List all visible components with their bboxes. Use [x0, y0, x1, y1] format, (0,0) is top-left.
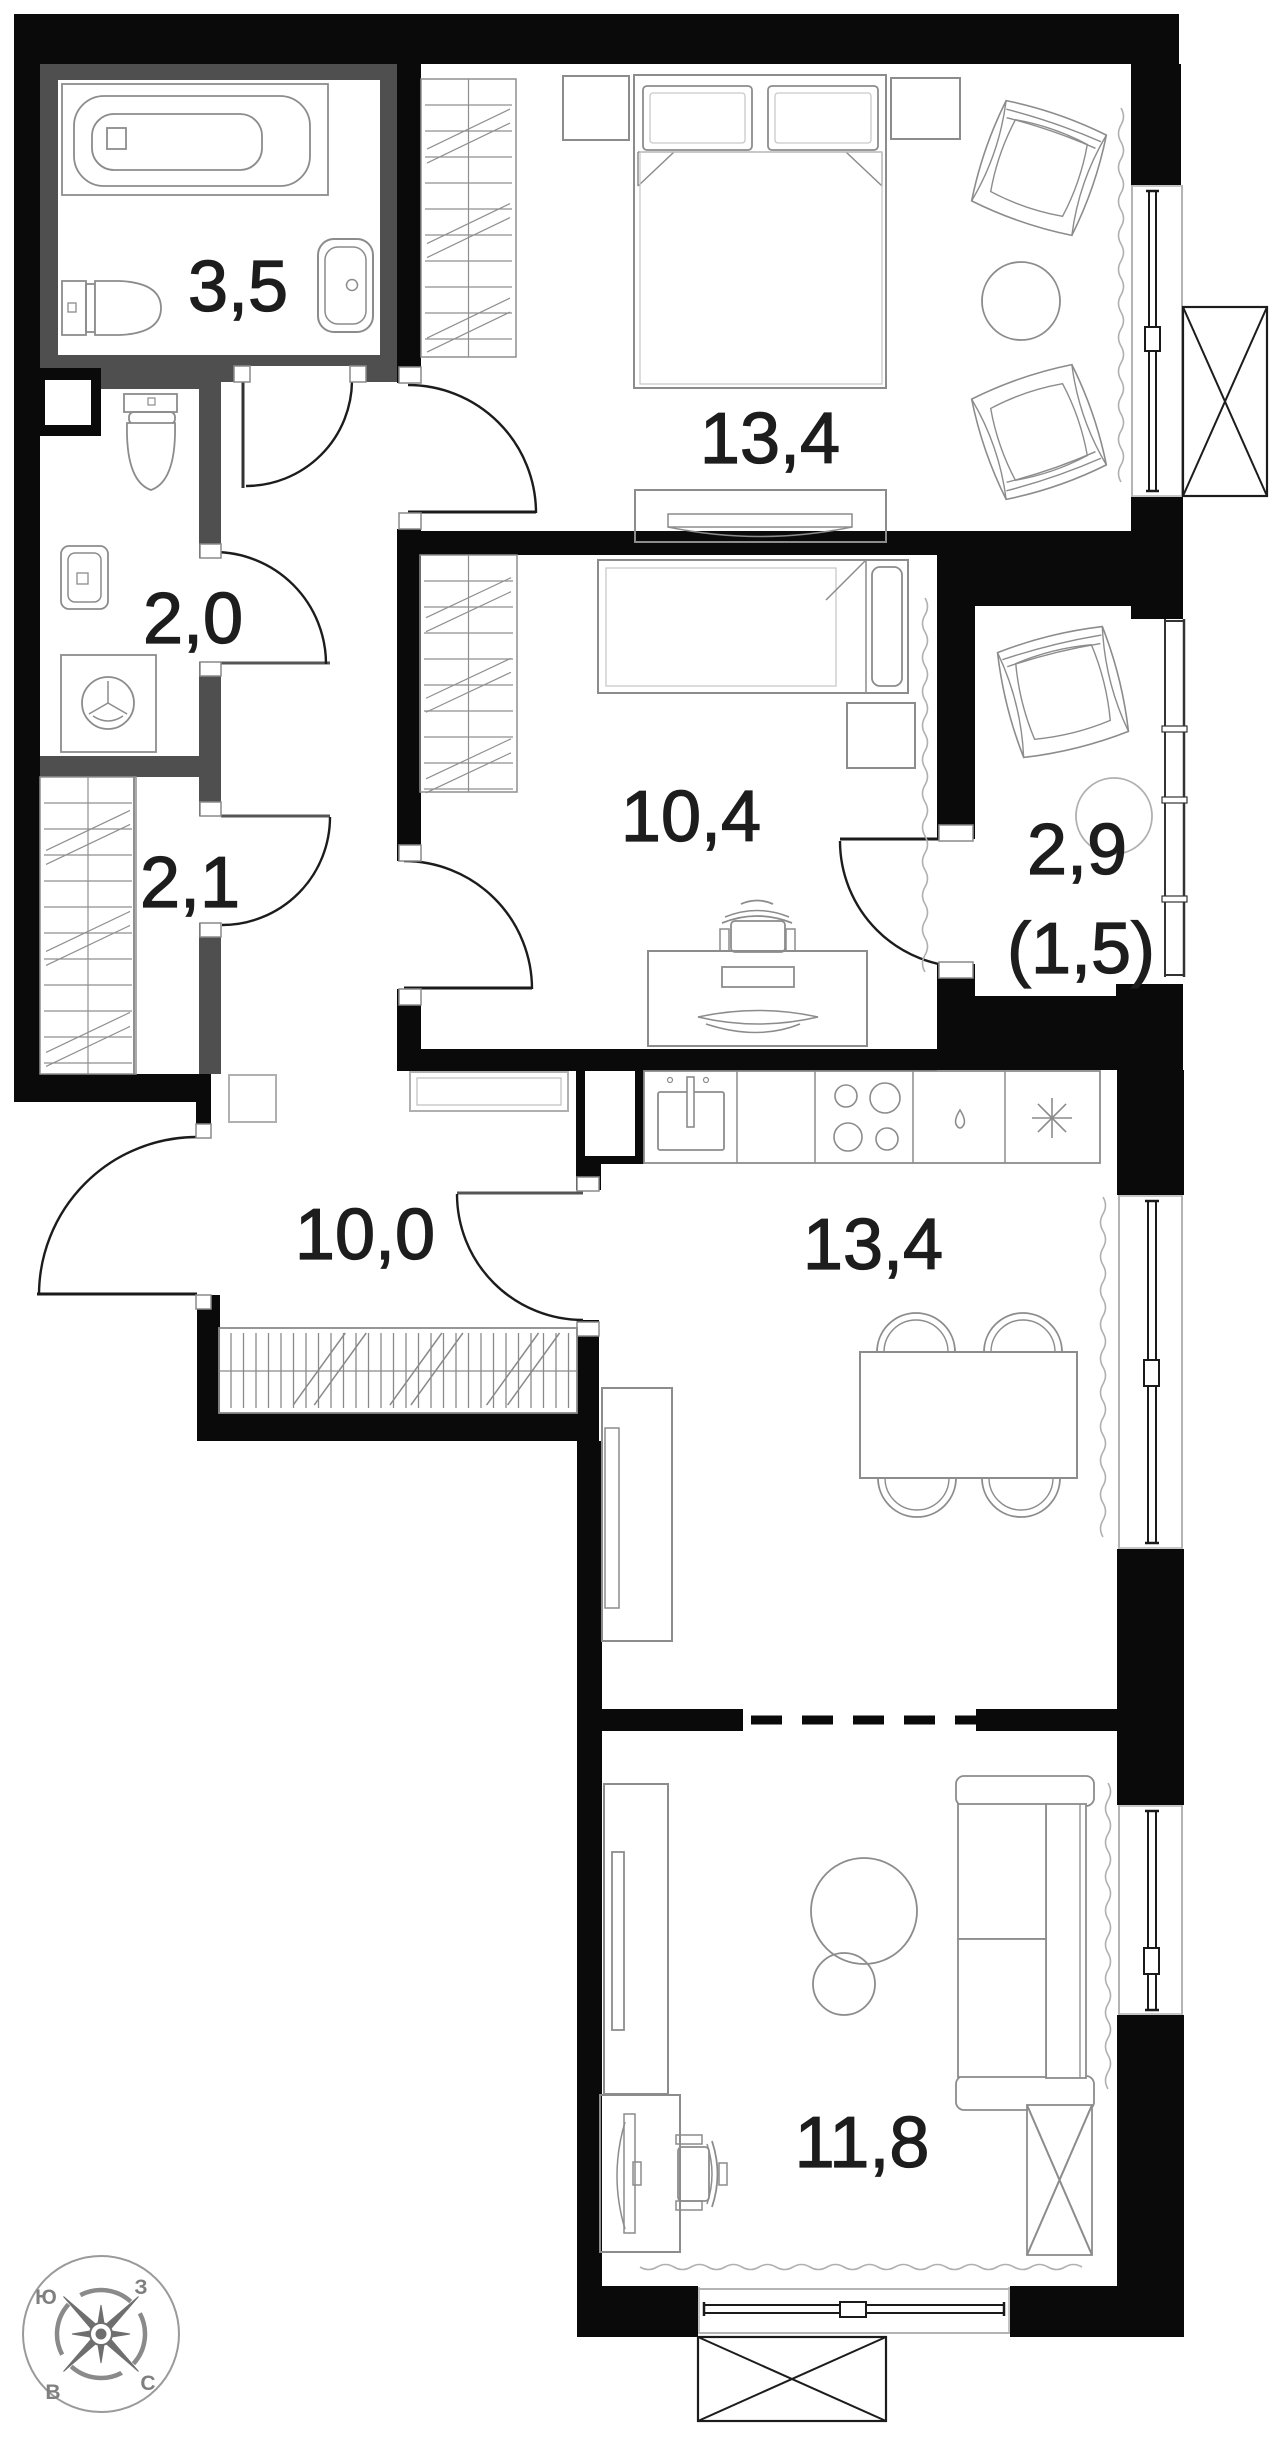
svg-text:2,0: 2,0: [143, 579, 243, 659]
svg-text:13,4: 13,4: [803, 1205, 943, 1285]
svg-text:11,8: 11,8: [795, 2103, 930, 2183]
svg-text:2,9: 2,9: [1027, 810, 1127, 890]
svg-text:10,0: 10,0: [295, 1195, 435, 1275]
svg-text:2,1: 2,1: [140, 843, 240, 923]
svg-text:З: З: [134, 2276, 147, 2299]
svg-text:(1,5): (1,5): [1007, 909, 1155, 989]
svg-text:С: С: [140, 2372, 155, 2395]
svg-text:10,4: 10,4: [621, 777, 761, 857]
svg-text:3,5: 3,5: [188, 247, 288, 327]
svg-text:В: В: [45, 2381, 60, 2404]
svg-text:13,4: 13,4: [700, 399, 840, 479]
svg-text:Ю: Ю: [35, 2286, 57, 2309]
